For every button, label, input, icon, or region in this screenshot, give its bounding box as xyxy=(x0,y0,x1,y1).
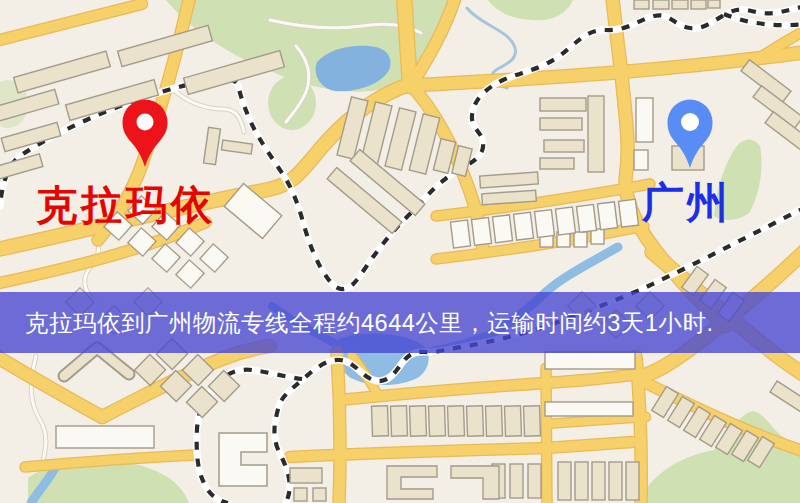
map-image xyxy=(0,0,800,503)
origin-city-label: 克拉玛依 xyxy=(36,178,216,233)
route-info-text: 克拉玛依到广州物流专线全程约4644公里，运输时间约3天1小时. xyxy=(0,307,713,339)
destination-pin-dot xyxy=(681,113,699,131)
route-info-banner: 克拉玛依到广州物流专线全程约4644公里，运输时间约3天1小时. xyxy=(0,292,800,353)
logistics-route-map: 克拉玛依 广州 克拉玛依到广州物流专线全程约4644公里，运输时间约3天1小时. xyxy=(0,0,800,503)
origin-pin-dot xyxy=(137,114,154,131)
destination-city-label: 广州 xyxy=(642,175,730,231)
